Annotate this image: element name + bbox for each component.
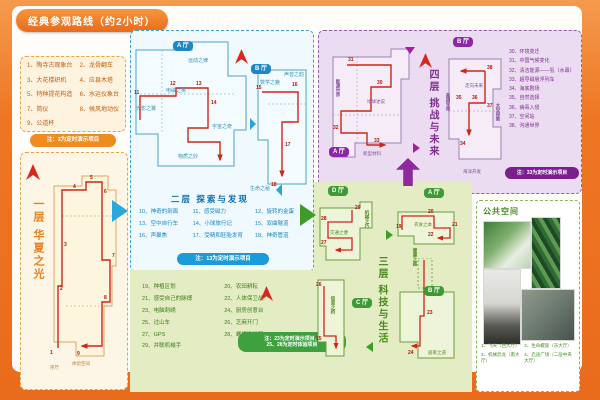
public-space-title: 公共空间 bbox=[483, 206, 519, 217]
route-number: 38 bbox=[487, 65, 493, 71]
list-item: 21、感受自己的脉搏 bbox=[142, 296, 224, 303]
zone-label: 走向未来 bbox=[465, 82, 483, 89]
nav-arrow-icon bbox=[386, 230, 393, 240]
list-item: 24、厨房创意台 bbox=[224, 308, 317, 315]
note-badge: 注：13为定时演示项目 bbox=[177, 253, 269, 265]
route-number: 33 bbox=[374, 138, 380, 144]
route-number: 32 bbox=[333, 125, 339, 131]
floor3-mapA: 19 20 21 22 衣食之本 bbox=[394, 204, 460, 254]
nav-arrow-icon bbox=[276, 184, 282, 196]
route-number: 4 bbox=[73, 184, 76, 190]
zone-label: 衣食之本 bbox=[414, 221, 432, 228]
floor3-title: 三层 科技与生活 bbox=[374, 256, 389, 345]
zone-label: 新型材料 bbox=[363, 150, 381, 157]
zone-label: 信息之桥 bbox=[330, 296, 336, 314]
route-number: 27 bbox=[321, 240, 327, 246]
zone-label: 体验空间 bbox=[72, 360, 90, 367]
route-number: 7 bbox=[112, 253, 115, 259]
zone-label: 声音之韵 bbox=[284, 71, 304, 78]
route-number: 22 bbox=[428, 232, 434, 238]
route-number: 11 bbox=[134, 90, 140, 96]
note-badge: 注：33为定时演示项目 bbox=[505, 167, 579, 179]
hall-badge: B 厅 bbox=[424, 286, 444, 296]
zone-label: 交通之便 bbox=[330, 229, 348, 236]
route-number: 28 bbox=[321, 216, 327, 222]
list-item: 26、芝麻开门 bbox=[224, 320, 317, 327]
route-number: 35 bbox=[456, 95, 462, 101]
hall-badge: A 厅 bbox=[173, 41, 193, 51]
caption: 1、飞天（西大厅） bbox=[481, 343, 524, 349]
list-item: 5、特种提花构造 bbox=[27, 92, 80, 102]
north-arrow-shape bbox=[26, 164, 40, 180]
list-item: 37、空间站 bbox=[509, 114, 579, 120]
floor4-exhibit-list: 30、环境变迁 31、中国气候变化 32、清洁能源——氢（水幕） 33、超导磁悬… bbox=[509, 49, 579, 129]
photo-dinosaur-sculpture bbox=[483, 269, 521, 345]
public-space-section: 公共空间 1、飞天（西大厅） 2、生命螺旋（东大厅） 3、机械恐龙（南大厅） 4… bbox=[476, 200, 580, 392]
zone-label: 海洋开发 bbox=[463, 168, 481, 175]
floor4-section: 31 30 32 33 地球述说 新型材料 能源世界 A 厅 四层 挑战与未来 … bbox=[318, 30, 582, 194]
list-item: 19、种植区划 bbox=[142, 284, 224, 291]
list-item: 38、沟通世界 bbox=[509, 123, 579, 129]
nav-arrow-icon bbox=[366, 342, 373, 352]
route-number: 6 bbox=[104, 189, 107, 195]
route-number: 29 bbox=[355, 205, 361, 211]
floor3-mapB: 23 24 居家之道 bbox=[394, 258, 460, 374]
route-number: 31 bbox=[348, 57, 354, 63]
list-item: 14、小球旅行记 bbox=[193, 221, 255, 228]
floor4-title: 四层 挑战与未来 bbox=[425, 69, 440, 158]
north-arrow-shape bbox=[260, 286, 273, 301]
list-item: 17、受精和胚胎发育 bbox=[193, 233, 255, 240]
route-number: 17 bbox=[285, 142, 291, 148]
list-item: 9、公道杯 bbox=[27, 121, 80, 131]
hall-badge: A 厅 bbox=[424, 188, 444, 198]
list-item: 10、神奇的剖面 bbox=[139, 209, 193, 216]
list-item: 7、简仪 bbox=[27, 107, 80, 117]
route-number: 18 bbox=[271, 182, 277, 188]
zone-label: 物质之妙 bbox=[178, 153, 198, 160]
zone-label: 机械之巧 bbox=[364, 210, 370, 228]
north-arrow-shape bbox=[235, 49, 248, 64]
list-item: 34、海底剧场 bbox=[509, 86, 579, 92]
hall-badge: B 厅 bbox=[251, 64, 271, 74]
route-number: 37 bbox=[487, 103, 493, 109]
list-item: 32、清洁能源——氢（水幕） bbox=[509, 68, 579, 74]
route-number: 9 bbox=[77, 351, 80, 357]
list-item: 35、自然选择 bbox=[509, 95, 579, 101]
floor1-map: 1 2 3 4 5 6 7 8 9 序厅 体验空间 bbox=[46, 156, 124, 382]
route-number: 13 bbox=[196, 81, 202, 87]
page-title: 经典参观路线（约2小时） bbox=[16, 9, 168, 32]
north-arrow-icon bbox=[26, 164, 40, 180]
list-item: 29、并联机械手 bbox=[142, 343, 224, 350]
route-number: 36 bbox=[472, 95, 478, 101]
nav-arrow-icon bbox=[405, 47, 415, 54]
leaflet-background: 经典参观路线（约2小时） 1、陶寺古观象台 2、龙骨翻车 3、大花楼织机 4、应… bbox=[0, 0, 600, 400]
list-item: 3、大花楼织机 bbox=[27, 78, 80, 88]
photo-life-spiral bbox=[531, 217, 561, 289]
floor2-title: 二层 探索与发现 bbox=[171, 193, 249, 205]
floor1-exhibit-list: 1、陶寺古观象台 2、龙骨翻车 3、大花楼织机 4、应县木塔 5、特种提花构造 … bbox=[20, 56, 126, 132]
caption: 2、生命螺旋（东大厅） bbox=[524, 343, 575, 349]
list-item: 23、电脑刺绣 bbox=[142, 308, 224, 315]
route-number: 8 bbox=[104, 295, 107, 301]
route-number: 25 bbox=[316, 336, 322, 342]
route-number: 3 bbox=[64, 242, 67, 248]
note-badge: 注：3为定时演示项目 bbox=[30, 134, 116, 147]
zone-label: 地球述说 bbox=[367, 98, 385, 105]
list-item: 18、神奇管道 bbox=[255, 233, 307, 240]
route-number: 34 bbox=[460, 141, 466, 147]
hall-badge: C 厅 bbox=[352, 298, 372, 308]
zone-label: 基因生命 bbox=[445, 93, 451, 111]
public-captions: 1、飞天（西大厅） 2、生命螺旋（东大厅） 3、机械恐龙（南大厅） 4、启迪广场… bbox=[481, 343, 575, 364]
zone-label: 能源世界 bbox=[335, 79, 341, 97]
building-outline bbox=[54, 176, 116, 356]
route-number: 21 bbox=[452, 222, 458, 228]
north-arrow-shape bbox=[419, 53, 432, 68]
floor2-section: 11 12 13 14 15 16 17 18 运动之律 光影之翼 电磁之奥 宇… bbox=[130, 30, 314, 272]
list-item: 16、声聚焦 bbox=[139, 233, 193, 240]
route-number: 20 bbox=[428, 209, 434, 215]
route-number: 5 bbox=[90, 175, 93, 181]
list-item: 36、病毒入侵 bbox=[509, 105, 579, 111]
north-arrow-icon bbox=[419, 53, 432, 68]
list-item: 33、超导磁悬浮列车 bbox=[509, 77, 579, 83]
route-number: 12 bbox=[170, 81, 176, 87]
list-item: 11、感受磁力 bbox=[193, 209, 255, 216]
route-number: 2 bbox=[60, 286, 63, 292]
zone-label: 宇宙之奇 bbox=[212, 123, 232, 130]
route-number: 16 bbox=[292, 82, 298, 88]
list-item: 2、龙骨翻车 bbox=[80, 63, 121, 73]
caption: 3、机械恐龙（南大厅） bbox=[481, 352, 524, 364]
list-item: 4、应县木塔 bbox=[80, 78, 121, 88]
list-item: 31、中国气候变化 bbox=[509, 58, 579, 64]
north-arrow-icon bbox=[260, 286, 273, 301]
zone-label: 运动之律 bbox=[188, 57, 208, 64]
hall-badge: A 厅 bbox=[329, 147, 349, 157]
zone-label: 光影之翼 bbox=[136, 105, 156, 112]
zone-label: 电磁之奥 bbox=[166, 87, 186, 94]
building-outline bbox=[400, 292, 454, 358]
list-item: 13、空中自行车 bbox=[139, 221, 193, 228]
photo-flying-sculpture bbox=[483, 221, 531, 269]
north-arrow-icon bbox=[235, 49, 248, 64]
floor3-mapC: 26 25 bbox=[312, 272, 350, 364]
list-item: 8、候风地动仪 bbox=[80, 107, 121, 117]
note-line: 25、28为定时体验项目 bbox=[266, 342, 317, 348]
zone-label: 序厅 bbox=[50, 364, 59, 371]
floor2-exhibit-list: 10、神奇的剖面 11、感受磁力 12、旋转的金蛋 13、空中自行车 14、小球… bbox=[139, 209, 307, 240]
floor1-title: 一层 华夏之光 bbox=[30, 198, 46, 281]
hall-badge: D 厅 bbox=[328, 186, 348, 196]
nav-arrow-icon bbox=[250, 118, 256, 130]
route-number: 26 bbox=[316, 282, 322, 288]
floor3-mapD: 29 28 27 交通之便 bbox=[316, 198, 376, 268]
route-number: 30 bbox=[377, 80, 383, 86]
list-item: 1、陶寺古观象台 bbox=[27, 63, 80, 73]
list-item: 6、水运仪象台 bbox=[80, 92, 121, 102]
route-arrow-floor2-to-floor3 bbox=[300, 204, 316, 226]
route-arrow-floor1-to-floor2 bbox=[112, 200, 128, 222]
route-number: 24 bbox=[408, 350, 414, 356]
floor2-map: 11 12 13 14 15 16 17 18 运动之律 光影之翼 电磁之奥 宇… bbox=[132, 34, 310, 202]
caption: 4、启迪广场（二层中央大厅） bbox=[524, 352, 575, 364]
zone-label: 太空探索 bbox=[495, 103, 501, 121]
zone-label: 数学之魅 bbox=[260, 79, 280, 86]
building-outline bbox=[318, 280, 344, 356]
corridor-outline bbox=[418, 258, 432, 288]
route-number: 1 bbox=[50, 350, 53, 356]
route-number: 23 bbox=[427, 310, 433, 316]
nav-arrow-icon bbox=[413, 143, 420, 153]
photo-plaza-mural bbox=[521, 289, 575, 341]
hall-badge: B 厅 bbox=[453, 37, 473, 47]
building-outline bbox=[449, 59, 501, 159]
list-item: 30、环境变迁 bbox=[509, 49, 579, 55]
route-number: 14 bbox=[211, 100, 217, 106]
zone-label: 生命之秘 bbox=[250, 185, 270, 192]
zone-label: 居家之道 bbox=[428, 349, 446, 356]
list-item: 27、GPS bbox=[142, 332, 224, 339]
route-number: 19 bbox=[396, 224, 402, 230]
list-item: 25、过山车 bbox=[142, 320, 224, 327]
